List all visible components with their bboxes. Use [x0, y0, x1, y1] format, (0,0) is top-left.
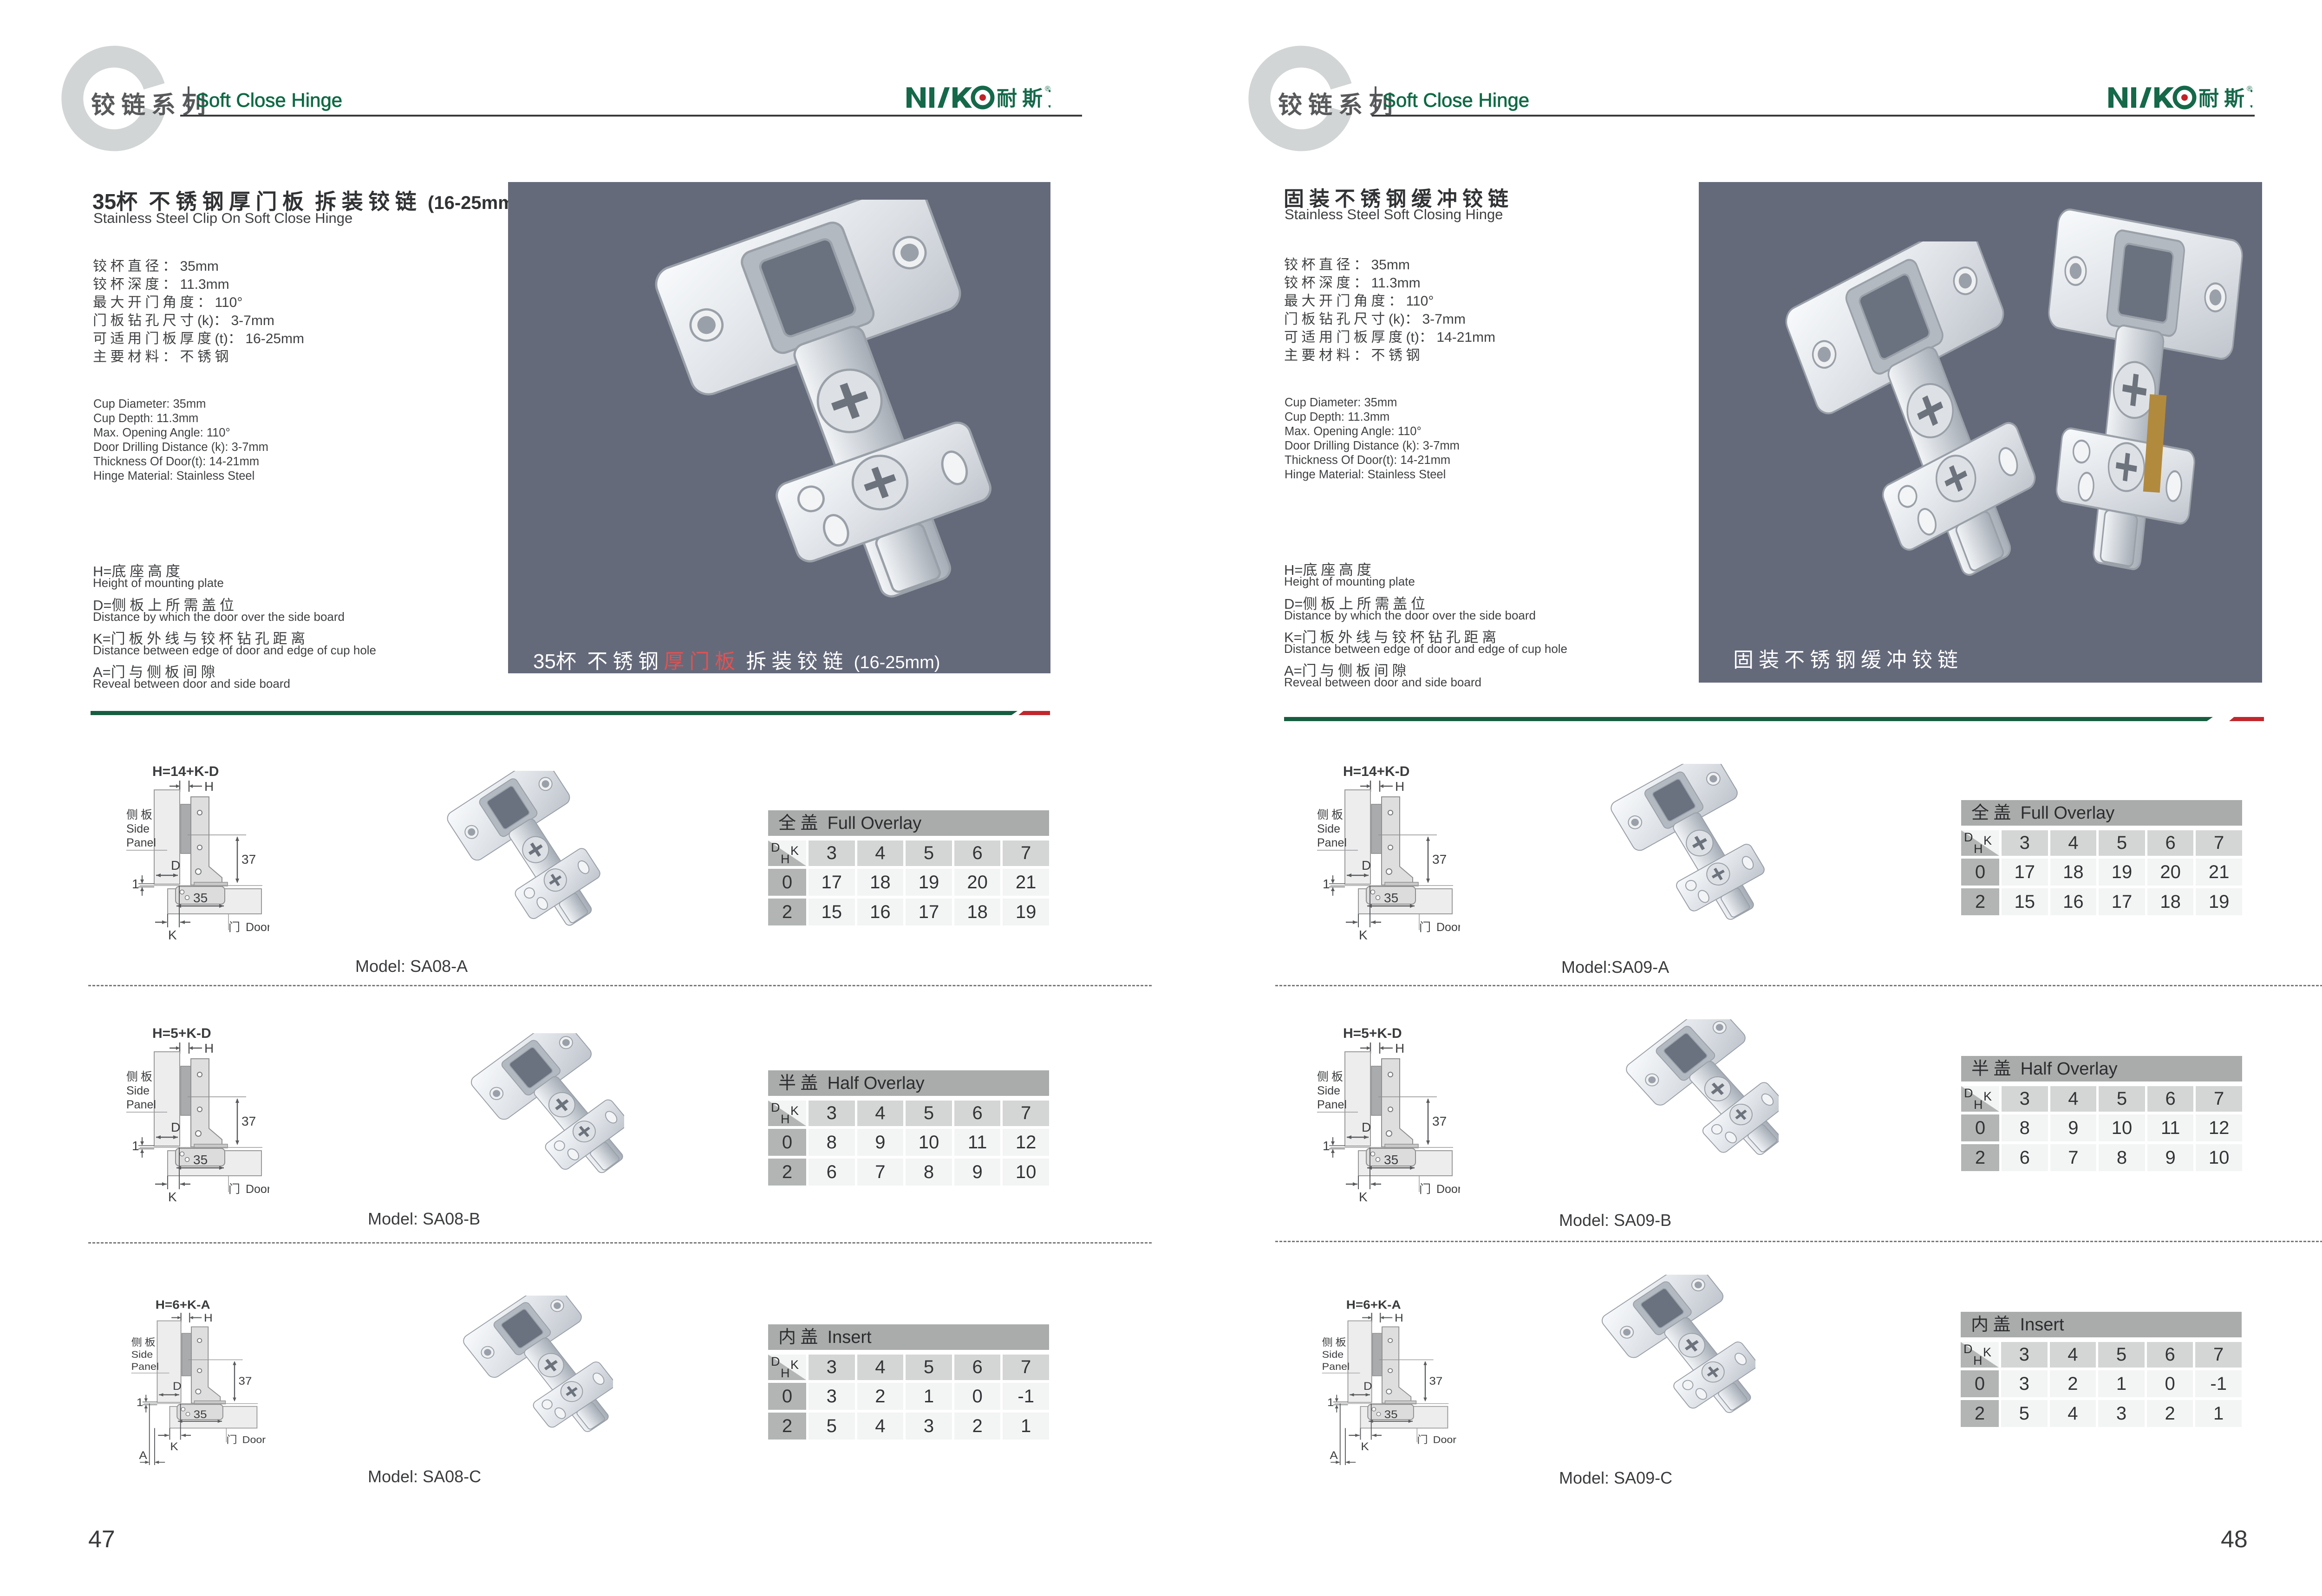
svg-text:A: A [1330, 1449, 1338, 1462]
svg-text:K: K [168, 1190, 177, 1204]
svg-text:侧板: 侧板 [131, 1337, 158, 1348]
svg-text:D: D [171, 1120, 180, 1134]
svg-text:门 Door: 门 Door [226, 1434, 266, 1445]
svg-text:1: 1 [132, 1139, 139, 1153]
svg-text:35: 35 [194, 1408, 207, 1421]
svg-text:A: A [139, 1449, 147, 1462]
svg-text:H=6+K-A: H=6+K-A [1346, 1298, 1401, 1311]
svg-text:H: H [1395, 1041, 1404, 1055]
svg-text:H=5+K-D: H=5+K-D [152, 1026, 211, 1041]
svg-text:1: 1 [1323, 877, 1330, 891]
svg-text:耐斯克: 耐斯克 [997, 87, 1050, 110]
svg-text:Side: Side [126, 1084, 150, 1097]
svg-text:Side: Side [1322, 1349, 1344, 1360]
svg-text:侧板: 侧板 [126, 808, 155, 821]
svg-text:K: K [168, 928, 177, 942]
svg-text:Panel: Panel [1317, 836, 1347, 849]
svg-text:35: 35 [1384, 1408, 1398, 1421]
svg-text:门 Door: 门 Door [228, 1183, 269, 1196]
svg-text:K: K [1361, 1440, 1369, 1453]
svg-text:H: H [204, 1312, 213, 1324]
svg-text:Side: Side [1317, 822, 1340, 835]
svg-text:1: 1 [137, 1396, 143, 1409]
svg-text:Panel: Panel [1317, 1098, 1347, 1111]
svg-text:Panel: Panel [126, 1098, 156, 1111]
svg-text:Side: Side [126, 822, 150, 835]
svg-text:37: 37 [241, 852, 256, 866]
svg-text:35: 35 [1384, 1153, 1398, 1167]
svg-text:侧板: 侧板 [126, 1070, 155, 1083]
svg-text:侧板: 侧板 [1317, 1070, 1346, 1083]
svg-text:侧板: 侧板 [1317, 808, 1346, 821]
svg-text:K: K [1359, 1190, 1368, 1204]
svg-text:Side: Side [1317, 1084, 1340, 1097]
svg-text:37: 37 [238, 1375, 252, 1388]
svg-text:K: K [170, 1440, 178, 1453]
svg-text:37: 37 [1432, 852, 1447, 866]
svg-text:H=14+K-D: H=14+K-D [1343, 764, 1409, 779]
svg-text:35: 35 [193, 1153, 208, 1167]
svg-text:Panel: Panel [1322, 1361, 1350, 1372]
svg-text:Panel: Panel [131, 1361, 159, 1372]
svg-text:35: 35 [193, 891, 208, 905]
svg-text:1: 1 [1323, 1139, 1330, 1153]
svg-text:H: H [1395, 1312, 1403, 1324]
svg-text:37: 37 [241, 1114, 256, 1128]
svg-text:35: 35 [1384, 891, 1398, 905]
svg-text:H=14+K-D: H=14+K-D [152, 764, 219, 779]
svg-text:H=6+K-A: H=6+K-A [156, 1298, 210, 1311]
svg-text:®: ® [1045, 85, 1050, 93]
svg-text:H=5+K-D: H=5+K-D [1343, 1026, 1402, 1041]
svg-text:Panel: Panel [126, 836, 156, 849]
svg-text:1: 1 [1327, 1396, 1334, 1409]
svg-text:D: D [1363, 1380, 1372, 1393]
svg-text:1: 1 [132, 877, 139, 891]
svg-text:H: H [1395, 779, 1404, 794]
svg-text:门 Door: 门 Door [228, 921, 269, 934]
svg-text:耐斯克: 耐斯克 [2198, 87, 2252, 110]
svg-text:D: D [1362, 1120, 1371, 1134]
svg-text:37: 37 [1429, 1375, 1442, 1388]
svg-text:H: H [204, 779, 214, 794]
svg-text:门 Door: 门 Door [1419, 1183, 1460, 1196]
svg-text:®: ® [2247, 85, 2252, 93]
svg-text:D: D [173, 1380, 182, 1393]
svg-text:37: 37 [1432, 1114, 1447, 1128]
svg-text:K: K [1359, 928, 1368, 942]
svg-text:D: D [171, 858, 180, 873]
svg-text:Side: Side [131, 1349, 153, 1360]
svg-text:门 Door: 门 Door [1417, 1434, 1456, 1445]
svg-text:D: D [1362, 858, 1371, 873]
svg-text:H: H [204, 1041, 214, 1055]
svg-text:侧板: 侧板 [1322, 1337, 1349, 1348]
svg-text:门 Door: 门 Door [1419, 921, 1460, 934]
